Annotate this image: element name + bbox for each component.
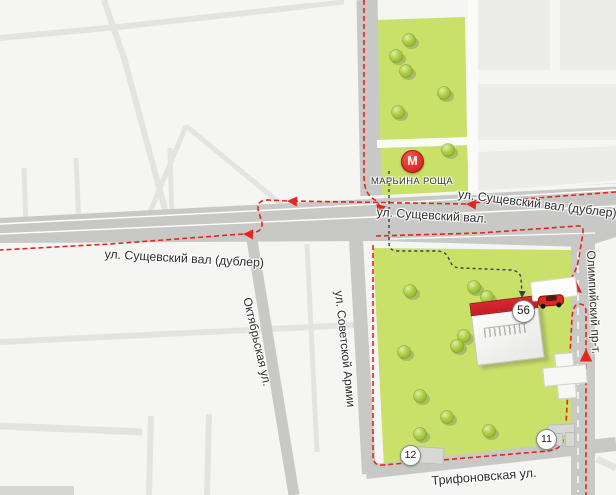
car-window [546,295,557,301]
house-11-building [565,432,575,447]
car-icon[interactable] [538,294,565,307]
metro-station-label: МАРЬИНА РОЩА [356,175,468,186]
house-11-badge[interactable]: 11 [536,429,557,450]
destination-house-badge[interactable]: 56 [512,300,535,323]
plus-building [541,351,587,398]
house-12-badge[interactable]: 12 [400,445,421,466]
map-layers [0,0,616,495]
plus-building-wing [542,364,587,387]
map-canvas[interactable]: М МАРЬИНА РОЩА ул. Сущевский вал (дублер… [0,0,616,495]
metro-icon[interactable]: М [401,150,424,173]
